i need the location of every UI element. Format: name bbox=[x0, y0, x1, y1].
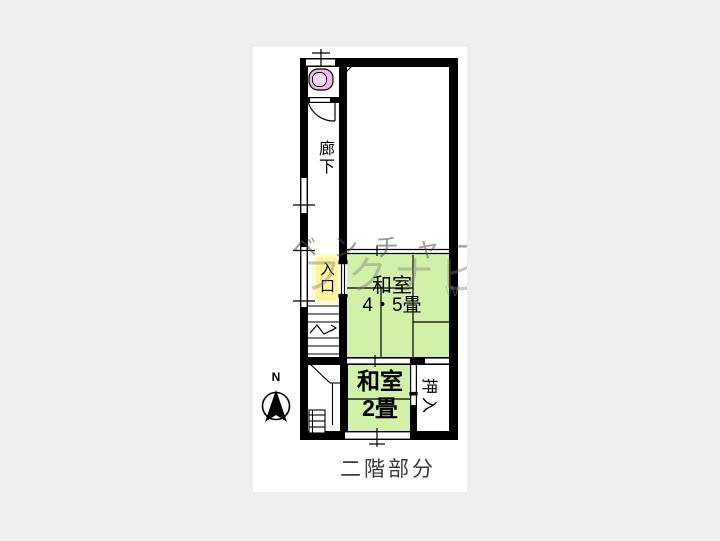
tatami-45-room-size: 4・5畳 bbox=[336, 296, 448, 315]
closet-label: 押入 bbox=[420, 378, 436, 416]
entrance-label: 入口 bbox=[319, 261, 334, 295]
tatami-2-room-name: 和室 bbox=[334, 370, 426, 393]
opening-closet-top bbox=[425, 359, 449, 364]
tatami-2-room-size: 2畳 bbox=[334, 397, 426, 420]
wall-right bbox=[449, 58, 458, 440]
wall-corridor bbox=[339, 58, 347, 250]
staircase bbox=[308, 306, 339, 354]
floorplan-page: 廊下 入口 和室 4・5畳 和室 2畳 押入 N 二階部分 ベンチャー フクナビ… bbox=[0, 0, 720, 541]
opening-room-divider bbox=[347, 359, 410, 364]
window-left-entrance bbox=[301, 247, 306, 307]
toilet-icon bbox=[309, 69, 333, 90]
tatami-45-room-name: 和室 bbox=[336, 276, 448, 296]
corridor-label: 廊下 bbox=[316, 140, 332, 176]
stair-direction-arrow bbox=[310, 325, 336, 334]
toilet-door-arc bbox=[308, 102, 335, 121]
window-left-upper bbox=[301, 178, 306, 213]
compass bbox=[263, 390, 290, 422]
floor-caption: 二階部分 bbox=[300, 459, 476, 480]
wall-left bbox=[300, 58, 308, 431]
compass-north-label: N bbox=[267, 371, 285, 383]
opening-toilet-door bbox=[310, 98, 330, 102]
